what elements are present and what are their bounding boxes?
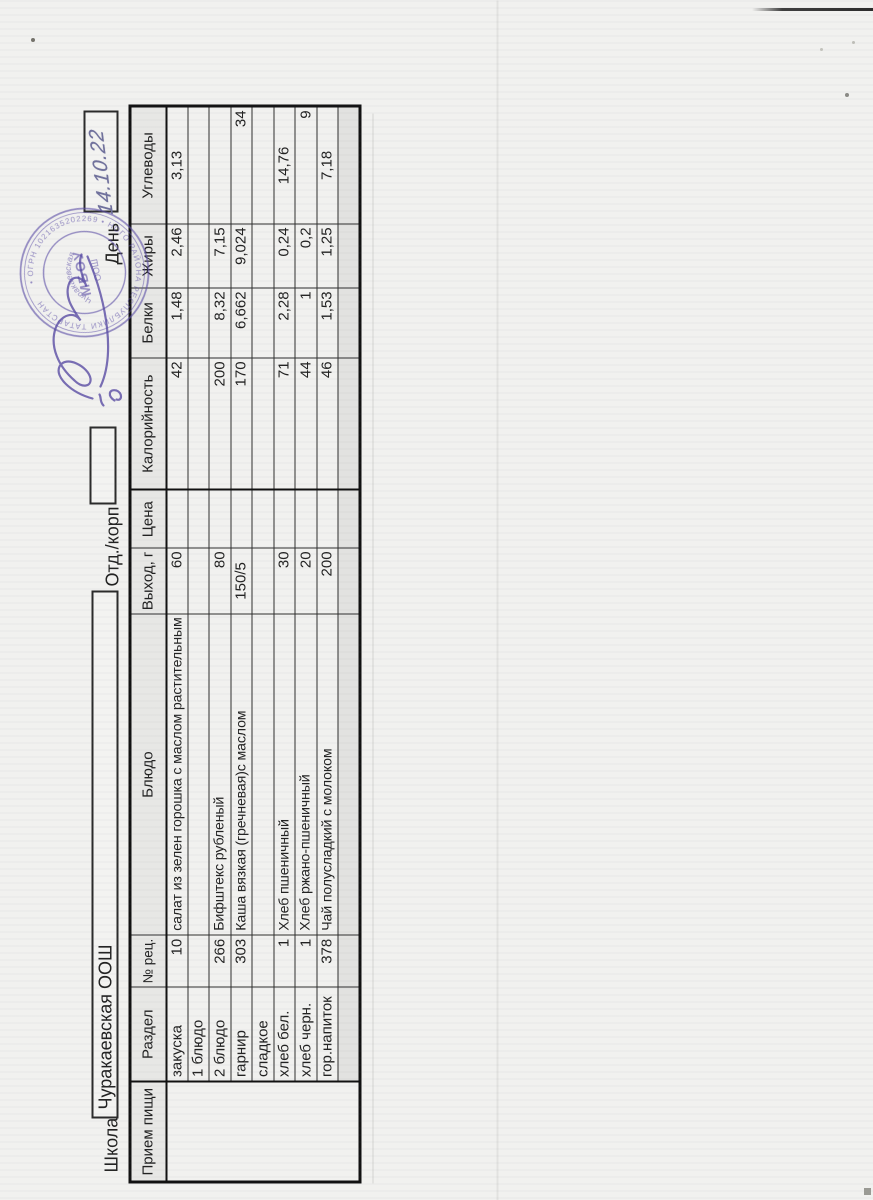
col-header-dish: Блюдо	[130, 613, 166, 934]
document-page: Школа Чуракаевская ООШ Отд./корп День 14…	[0, 0, 873, 1200]
table-row: 2 блюдо266Бифштекс рубленый802008,327,15	[209, 105, 231, 1181]
cell-dish: Хлеб пшеничный	[273, 613, 295, 934]
table-row: хлеб бел.1Хлеб пшеничный30712,280,2414,7…	[273, 105, 295, 1181]
cell-section	[338, 987, 360, 1082]
cell-rec	[338, 935, 360, 987]
cell-protein: 8,32	[209, 287, 231, 357]
scan-speck	[820, 48, 823, 51]
cell-dish: Хлеб ржано-пшеничный	[295, 613, 317, 934]
menu-table: Прием пищи Раздел № рец. Блюдо Выход, г …	[128, 104, 361, 1183]
col-header-meal: Прием пищи	[130, 1082, 166, 1182]
cell-output: 30	[273, 547, 295, 613]
dept-value-box	[89, 426, 116, 504]
cell-dish: Бифштекс рубленый	[209, 613, 231, 934]
scan-speck	[852, 41, 855, 44]
cell-carbs: 9	[295, 105, 317, 223]
cell-section: закуска	[166, 987, 188, 1082]
cell-section: гарнир	[230, 987, 252, 1082]
cell-section: гор.напиток	[316, 987, 338, 1082]
cell-price	[187, 489, 209, 547]
scan-speck	[864, 1188, 871, 1195]
cell-output: 60	[166, 547, 188, 613]
school-name: Чуракаевская ООШ	[95, 944, 116, 1109]
meal-column-cell	[166, 1082, 360, 1182]
cell-protein: 1,48	[166, 287, 188, 357]
school-name-box: Чуракаевская ООШ	[91, 590, 118, 1118]
cell-carbs	[209, 105, 231, 223]
school-label: Школа	[101, 1117, 122, 1172]
cell-section: 1 блюдо	[187, 987, 209, 1082]
cell-fat: 9,024	[230, 223, 252, 287]
cell-protein: 2,28	[273, 287, 295, 357]
cell-cal: 42	[166, 357, 188, 489]
cell-fat	[187, 223, 209, 287]
table-row: гор.напиток378Чай полусладкий с молоком2…	[316, 105, 338, 1181]
cell-dish	[187, 613, 209, 934]
cell-cal	[252, 357, 274, 489]
cell-price	[209, 489, 231, 547]
col-header-price: Цена	[130, 489, 166, 547]
table-row	[338, 105, 360, 1181]
cell-cal	[338, 357, 360, 489]
cell-cal: 46	[316, 357, 338, 489]
cell-fat	[252, 223, 274, 287]
cell-carbs: 34	[230, 105, 252, 223]
table-row: гарнир303Каша вязкая (гречневая)с маслом…	[230, 105, 252, 1181]
scan-speck	[845, 93, 849, 97]
paper-edge-line	[496, 0, 498, 1200]
cell-protein	[252, 287, 274, 357]
cell-cal: 200	[209, 357, 231, 489]
col-header-section: Раздел	[130, 987, 166, 1082]
cell-price	[295, 489, 317, 547]
cell-section: сладкое	[252, 987, 274, 1082]
col-header-calories: Калорийность	[130, 357, 166, 489]
signature	[30, 233, 125, 408]
table-row: сладкое	[252, 105, 274, 1181]
table-row: хлеб черн.1Хлеб ржано-пшеничный204410,29	[295, 105, 317, 1181]
cell-rec: 266	[209, 935, 231, 987]
cell-cal	[187, 357, 209, 489]
cell-protein: 6,662	[230, 287, 252, 357]
cell-section: хлеб черн.	[295, 987, 317, 1082]
menu-table-body: закуска10салат из зелен горошка с маслом…	[166, 105, 360, 1181]
cell-rec	[252, 935, 274, 987]
cell-protein	[338, 287, 360, 357]
cell-fat: 0,2	[295, 223, 317, 287]
cell-dish	[252, 613, 274, 934]
cell-carbs: 7,18	[316, 105, 338, 223]
cell-protein: 1,53	[316, 287, 338, 357]
cell-price	[273, 489, 295, 547]
cell-price	[338, 489, 360, 547]
cell-carbs: 14,76	[273, 105, 295, 223]
cell-fat: 2,46	[166, 223, 188, 287]
cell-cal: 44	[295, 357, 317, 489]
scanner-edge-mark	[752, 8, 873, 11]
cell-price	[166, 489, 188, 547]
cell-cal: 170	[230, 357, 252, 489]
table-row: 1 блюдо	[187, 105, 209, 1181]
cell-fat	[338, 223, 360, 287]
table-row: закуска10салат из зелен горошка с маслом…	[166, 105, 188, 1181]
cell-output: 20	[295, 547, 317, 613]
cell-output: 200	[316, 547, 338, 613]
scan-artifact-line	[372, 113, 373, 1183]
dept-label: Отд./корп	[102, 506, 123, 586]
cell-output: 150/5	[230, 547, 252, 613]
cell-rec: 1	[295, 935, 317, 987]
cell-output: 80	[209, 547, 231, 613]
cell-carbs	[252, 105, 274, 223]
col-header-output: Выход, г	[130, 547, 166, 613]
scan-speck	[31, 38, 35, 42]
cell-dish: Чай полусладкий с молоком	[316, 613, 338, 934]
cell-rec: 1	[273, 935, 295, 987]
menu-table-wrap: Прием пищи Раздел № рец. Блюдо Выход, г …	[128, 104, 361, 1183]
scanned-document: Школа Чуракаевская ООШ Отд./корп День 14…	[0, 0, 873, 1200]
cell-rec: 303	[230, 935, 252, 987]
cell-rec: 378	[316, 935, 338, 987]
cell-section: хлеб бел.	[273, 987, 295, 1082]
cell-dish	[338, 613, 360, 934]
cell-fat: 0,24	[273, 223, 295, 287]
cell-price	[316, 489, 338, 547]
cell-price	[252, 489, 274, 547]
cell-protein: 1	[295, 287, 317, 357]
cell-fat: 7,15	[209, 223, 231, 287]
cell-output	[338, 547, 360, 613]
cell-output	[252, 547, 274, 613]
cell-protein	[187, 287, 209, 357]
cell-price	[230, 489, 252, 547]
cell-carbs	[187, 105, 209, 223]
cell-section: 2 блюдо	[209, 987, 231, 1082]
cell-dish: салат из зелен горошка с маслом растител…	[166, 613, 188, 934]
cell-rec	[187, 935, 209, 987]
col-header-recipe: № рец.	[130, 935, 166, 987]
cell-fat: 1,25	[316, 223, 338, 287]
cell-cal: 71	[273, 357, 295, 489]
cell-dish: Каша вязкая (гречневая)с маслом	[230, 613, 252, 934]
cell-carbs	[338, 105, 360, 223]
cell-carbs: 3,13	[166, 105, 188, 223]
cell-output	[187, 547, 209, 613]
cell-rec: 10	[166, 935, 188, 987]
